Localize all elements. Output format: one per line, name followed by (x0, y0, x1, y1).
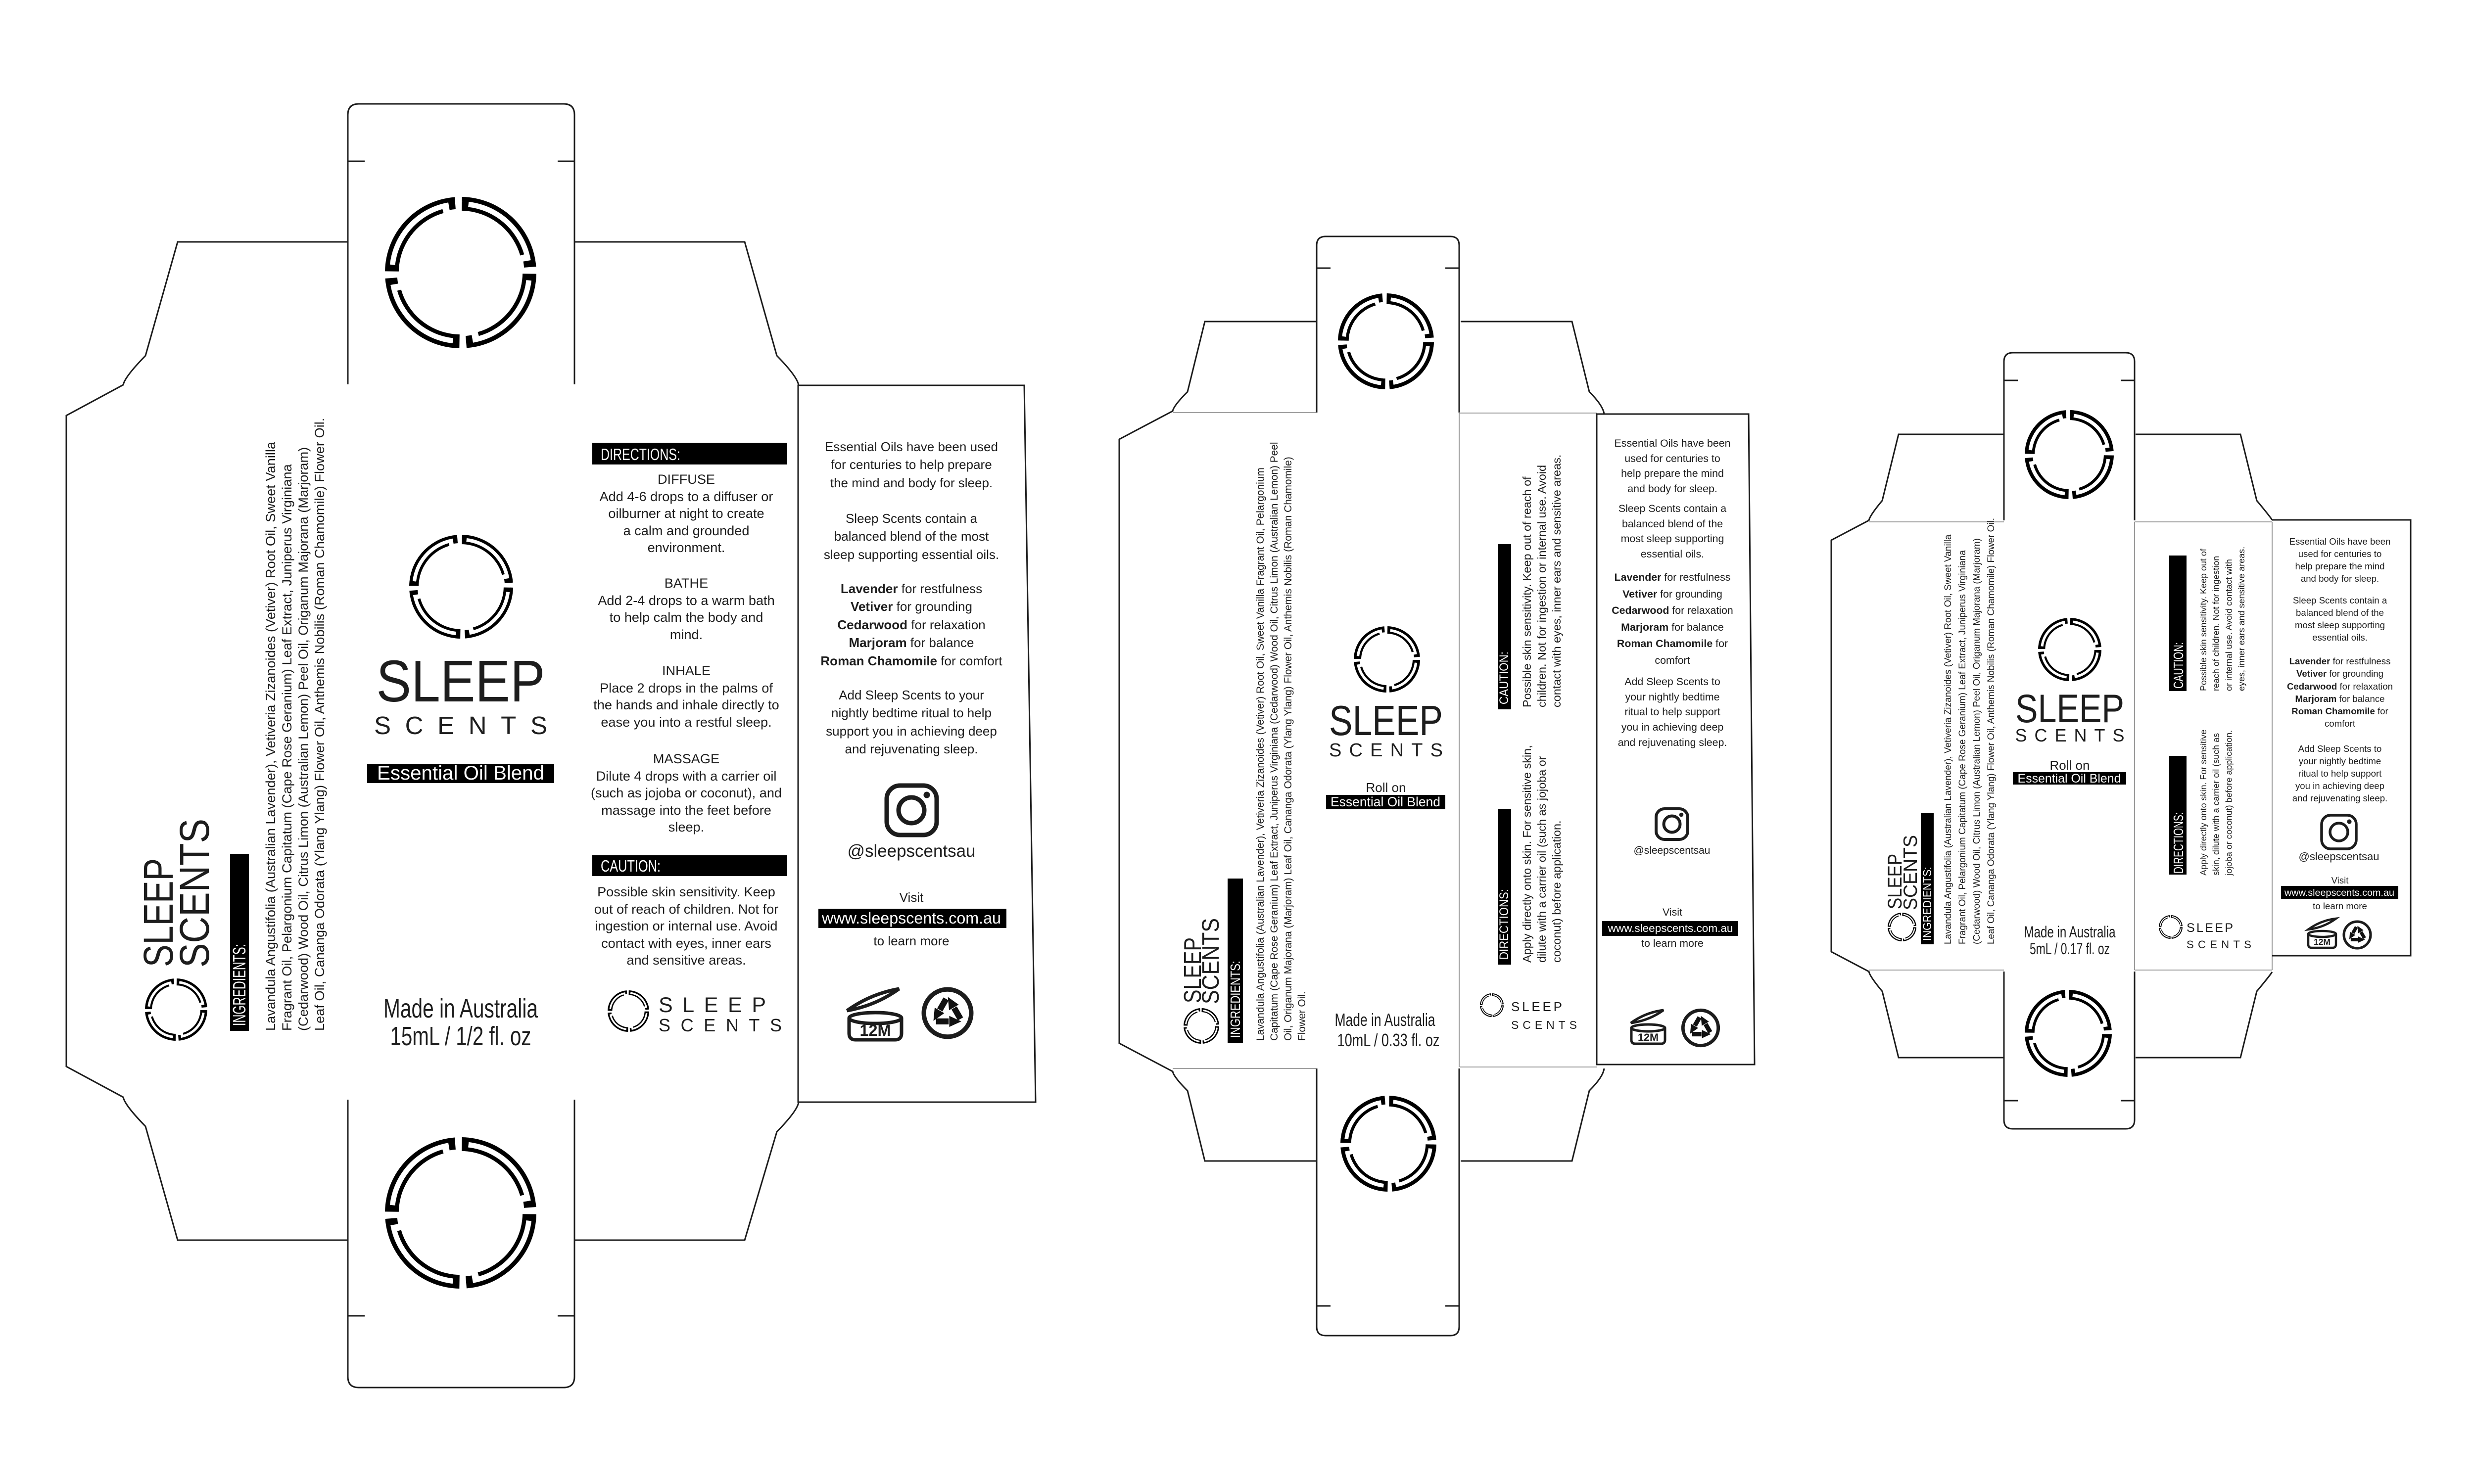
svg-text:SLEEP: SLEEP (1511, 999, 1565, 1014)
svg-text:and rejuvenating sleep.: and rejuvenating sleep. (2292, 793, 2387, 803)
svg-text:you in achieving deep: you in achieving deep (2295, 781, 2384, 791)
svg-text:Lavender for restfulness: Lavender for restfulness (1615, 571, 1731, 583)
svg-text:ritual to help support: ritual to help support (1624, 706, 1720, 718)
svg-text:used for centuries to: used for centuries to (2298, 549, 2382, 559)
svg-text:DIRECTIONS:: DIRECTIONS: (2171, 812, 2186, 874)
svg-text:and body for sleep.: and body for sleep. (1627, 483, 1717, 495)
svg-text:the hands and inhale directly: the hands and inhale directly to (593, 697, 779, 712)
svg-text:INGREDIENTS:: INGREDIENTS: (229, 944, 249, 1026)
svg-text:to learn more: to learn more (873, 933, 949, 948)
svg-text:SCENTS: SCENTS (1900, 835, 1921, 910)
svg-text:SCENTS: SCENTS (1329, 740, 1450, 761)
svg-text:Made in Australia: Made in Australia (1335, 1010, 1436, 1030)
svg-text:Essential Oil Blend: Essential Oil Blend (377, 762, 544, 784)
svg-text:Fragrant Oil, Pelargonium Capi: Fragrant Oil, Pelargonium Capitatum (Cap… (1957, 550, 1968, 944)
svg-text:Lavandula Angustifolia (Austra: Lavandula Angustifolia (Australian Laven… (1943, 534, 1953, 944)
svg-text:massage into the feet before: massage into the feet before (601, 802, 771, 818)
svg-text:Possible skin sensitivity. Kee: Possible skin sensitivity. Keep (597, 884, 775, 899)
svg-text:oilburner at night to create: oilburner at night to create (608, 506, 764, 521)
svg-text:(Cedarwood) Wood Oil, Citrus L: (Cedarwood) Wood Oil, Citrus Limon (Aust… (295, 447, 311, 1031)
svg-text:@sleepscentsau: @sleepscentsau (848, 841, 976, 861)
svg-text:and sensitive areas.: and sensitive areas. (626, 952, 746, 968)
svg-text:INHALE: INHALE (662, 663, 711, 678)
svg-text:Marjoram for balance: Marjoram for balance (2295, 694, 2384, 704)
svg-text:Sleep Scents contain a: Sleep Scents contain a (2293, 595, 2387, 605)
svg-text:essential oils.: essential oils. (1641, 548, 1704, 560)
svg-text:SCENTS: SCENTS (659, 1015, 792, 1035)
svg-text:SLEEP: SLEEP (2015, 687, 2124, 731)
svg-text:Lavandula Angustifolia (Austra: Lavandula Angustifolia (Australian Laven… (263, 441, 278, 1031)
svg-text:CAUTION:: CAUTION: (2171, 642, 2186, 689)
svg-text:Sleep Scents contain a: Sleep Scents contain a (1618, 503, 1726, 514)
svg-text:skin, dilute with a carrier oi: skin, dilute with a carrier oil (such as (2211, 733, 2221, 876)
svg-text:support you in achieving deep: support you in achieving deep (826, 724, 997, 739)
svg-text:www.sleepscents.com.au: www.sleepscents.com.au (821, 909, 1001, 927)
svg-text:balanced blend of the most: balanced blend of the most (834, 529, 989, 544)
svg-text:Add Sleep Scents to your: Add Sleep Scents to your (839, 688, 984, 702)
svg-text:Add Sleep Scents to: Add Sleep Scents to (2298, 743, 2382, 754)
svg-text:and rejuvenating sleep.: and rejuvenating sleep. (1618, 737, 1727, 748)
svg-text:(Cedarwood) Wood Oil, Citrus L: (Cedarwood) Wood Oil, Citrus Limon (Aust… (1972, 538, 1982, 944)
svg-text:most sleep supporting: most sleep supporting (2295, 620, 2385, 630)
svg-text:SCENTS: SCENTS (2015, 725, 2132, 745)
svg-text:balanced blend of the: balanced blend of the (1622, 518, 1723, 530)
svg-text:a calm and grounded: a calm and grounded (623, 523, 750, 538)
svg-text:and rejuvenating sleep.: and rejuvenating sleep. (845, 742, 978, 756)
svg-text:MASSAGE: MASSAGE (653, 751, 719, 766)
svg-text:comfort: comfort (1655, 654, 1690, 666)
svg-text:nightly bedtime ritual to help: nightly bedtime ritual to help (831, 705, 992, 720)
svg-text:Apply directly onto skin. For: Apply directly onto skin. For sensitive … (1521, 745, 1533, 963)
svg-text:Possible skin sensitivity. Kee: Possible skin sensitivity. Keep out of r… (1521, 476, 1533, 707)
svg-text:Vetiver for grounding: Vetiver for grounding (2296, 668, 2383, 679)
svg-text:jojoba or coconut) before appl: jojoba or coconut) before application. (2224, 730, 2234, 876)
svg-text:ease you into a restful sleep.: ease you into a restful sleep. (601, 714, 771, 730)
svg-text:(such as jojoba or coconut), a: (such as jojoba or coconut), and (591, 785, 782, 800)
svg-text:reach of children. Not for ing: reach of children. Not for ingestion (2211, 556, 2221, 691)
svg-text:the mind and body for sleep.: the mind and body for sleep. (830, 475, 993, 490)
svg-text:SLEEP: SLEEP (659, 993, 776, 1017)
svg-text:BATHE: BATHE (665, 575, 708, 591)
svg-text:you in achieving deep: you in achieving deep (1621, 721, 1723, 733)
svg-text:help prepare the mind: help prepare the mind (1621, 467, 1724, 479)
svg-text:ritual to help support: ritual to help support (2298, 768, 2382, 779)
svg-text:Capitatum (Cape Rose Geranium): Capitatum (Cape Rose Geranium) Leaf Extr… (1269, 442, 1280, 1041)
svg-text:Add Sleep Scents to: Add Sleep Scents to (1624, 676, 1720, 688)
svg-text:Essential Oils have been: Essential Oils have been (1615, 437, 1731, 449)
svg-text:@sleepscentsau: @sleepscentsau (2299, 850, 2379, 863)
svg-text:INGREDIENTS:: INGREDIENTS: (1228, 961, 1243, 1038)
svg-text:essential oils.: essential oils. (2312, 632, 2368, 643)
svg-text:Essential Oil Blend: Essential Oil Blend (2018, 772, 2121, 786)
svg-text:12M: 12M (1638, 1031, 1659, 1043)
svg-text:@sleepscentsau: @sleepscentsau (1634, 845, 1711, 856)
svg-text:DIFFUSE: DIFFUSE (658, 471, 715, 487)
svg-text:mind.: mind. (670, 627, 703, 642)
svg-text:Made in Australia: Made in Australia (2024, 923, 2116, 941)
svg-text:Possible skin sensitivity. Kee: Possible skin sensitivity. Keep out of (2198, 548, 2208, 691)
svg-text:SCENTS: SCENTS (1198, 918, 1224, 1004)
svg-text:CAUTION:: CAUTION: (601, 857, 661, 875)
svg-text:www.sleepscents.com.au: www.sleepscents.com.au (1608, 922, 1733, 934)
svg-text:Visit: Visit (2331, 875, 2349, 885)
svg-text:Lavandula Angustifolia (Austra: Lavandula Angustifolia (Australian Laven… (1255, 467, 1266, 1041)
svg-text:Visit: Visit (900, 890, 924, 905)
svg-text:for centuries to help prepare: for centuries to help prepare (831, 457, 992, 472)
svg-text:Add 4-6 drops to a diffuser or: Add 4-6 drops to a diffuser or (600, 489, 773, 504)
svg-text:Cedarwood for relaxation: Cedarwood for relaxation (837, 617, 985, 632)
svg-text:Essential Oils have been: Essential Oils have been (2289, 536, 2391, 547)
svg-text:ingestion or internal use. Avo: ingestion or internal use. Avoid (595, 918, 778, 933)
svg-text:12M: 12M (860, 1021, 891, 1039)
svg-text:www.sleepscents.com.au: www.sleepscents.com.au (2284, 887, 2394, 898)
svg-text:Fragrant Oil, Pelargonium Capi: Fragrant Oil, Pelargonium Capitatum (Cap… (279, 464, 294, 1031)
svg-text:Vetiver for grounding: Vetiver for grounding (851, 599, 972, 614)
svg-text:5mL / 0.17 fl. oz: 5mL / 0.17 fl. oz (2030, 940, 2110, 958)
svg-text:SCENTS: SCENTS (1511, 1019, 1581, 1031)
svg-text:comfort: comfort (2325, 718, 2356, 729)
svg-text:SCENTS: SCENTS (2187, 938, 2255, 951)
svg-text:Roman Chamomile for comfort: Roman Chamomile for comfort (820, 653, 1002, 668)
svg-text:help prepare the mind: help prepare the mind (2295, 561, 2384, 571)
svg-text:INGREDIENTS:: INGREDIENTS: (1921, 867, 1934, 941)
svg-text:contact with eyes, inner ears: contact with eyes, inner ears and sensit… (1550, 455, 1563, 707)
svg-text:dilute with a carrier oil (suc: dilute with a carrier oil (such as jojob… (1535, 756, 1548, 963)
svg-text:SLEEP: SLEEP (1329, 697, 1443, 744)
svg-text:SCENTS: SCENTS (374, 711, 562, 740)
svg-text:DIRECTIONS:: DIRECTIONS: (601, 445, 680, 464)
svg-text:Lavender for restfulness: Lavender for restfulness (841, 581, 982, 596)
svg-text:your nightly bedtime: your nightly bedtime (1625, 691, 1719, 703)
svg-text:SLEEP: SLEEP (2187, 921, 2235, 935)
svg-text:Apply directly onto skin. For: Apply directly onto skin. For sensitive (2198, 730, 2208, 876)
svg-text:most sleep supporting: most sleep supporting (1621, 533, 1724, 545)
svg-text:Roman Chamomile for: Roman Chamomile for (2291, 706, 2388, 716)
svg-text:Dilute 4 drops with a carrier: Dilute 4 drops with a carrier oil (596, 768, 777, 784)
svg-text:Oil, Origanum Majorana (Marjor: Oil, Origanum Majorana (Marjoram) Leaf O… (1283, 457, 1294, 1041)
svg-text:Roman Chamomile for: Roman Chamomile for (1617, 638, 1728, 649)
svg-text:Marjoram for balance: Marjoram for balance (1621, 621, 1724, 633)
svg-text:Vetiver for grounding: Vetiver for grounding (1622, 588, 1722, 600)
svg-text:balanced blend of the: balanced blend of the (2296, 607, 2384, 618)
svg-text:Roll on: Roll on (2050, 758, 2090, 773)
svg-text:Cedarwood for relaxation: Cedarwood for relaxation (1612, 604, 1733, 616)
svg-text:CAUTION:: CAUTION: (1497, 651, 1511, 704)
svg-text:to learn more: to learn more (1641, 937, 1704, 949)
svg-text:Roll on: Roll on (1366, 780, 1406, 795)
svg-text:Essential Oil Blend: Essential Oil Blend (1331, 794, 1440, 809)
svg-text:and body for sleep.: and body for sleep. (2301, 573, 2379, 584)
svg-text:15mL / 1/2 fl. oz: 15mL / 1/2 fl. oz (390, 1021, 531, 1051)
svg-text:out of reach of children. Not: out of reach of children. Not for (594, 901, 778, 917)
svg-text:Marjoram for balance: Marjoram for balance (849, 635, 974, 650)
svg-text:Leaf Oil, Cananga Odorata (Yla: Leaf Oil, Cananga Odorata (Ylang Ylang) … (1986, 518, 1997, 944)
svg-text:12M: 12M (2314, 937, 2331, 947)
svg-text:Cedarwood for relaxation: Cedarwood for relaxation (2287, 681, 2393, 692)
svg-text:your nightly bedtime: your nightly bedtime (2299, 756, 2381, 766)
svg-text:contact with eyes, inner ears: contact with eyes, inner ears (601, 935, 771, 951)
svg-text:environment.: environment. (648, 540, 725, 555)
svg-text:used for centuries to: used for centuries to (1624, 453, 1720, 464)
svg-text:eyes, inner ears and sensitive: eyes, inner ears and sensitive areas. (2236, 547, 2246, 691)
svg-text:or internal use. Avoid contact: or internal use. Avoid contact with (2224, 559, 2234, 691)
svg-text:Visit: Visit (1663, 906, 1682, 918)
svg-text:Add 2-4 drops to a warm bath: Add 2-4 drops to a warm bath (598, 593, 774, 608)
svg-text:10mL / 0.33 fl. oz: 10mL / 0.33 fl. oz (1337, 1030, 1440, 1050)
svg-text:to help calm the body and: to help calm the body and (610, 609, 763, 625)
svg-text:SCENTS: SCENTS (171, 819, 218, 968)
svg-text:SLEEP: SLEEP (377, 649, 545, 714)
svg-text:children. Not for ingestion or: children. Not for ingestion or internal … (1535, 465, 1548, 707)
svg-text:Flower Oil.: Flower Oil. (1296, 991, 1308, 1041)
svg-text:Essential Oils have been used: Essential Oils have been used (825, 439, 998, 454)
svg-text:Lavender for restfulness: Lavender for restfulness (2289, 656, 2391, 666)
svg-text:coconut) before application.: coconut) before application. (1550, 820, 1563, 963)
svg-text:Sleep Scents contain a: Sleep Scents contain a (846, 511, 978, 526)
svg-text:Leaf Oil, Cananga Odorata (Yla: Leaf Oil, Cananga Odorata (Ylang Ylang) … (312, 418, 327, 1031)
svg-text:Made in Australia: Made in Australia (383, 994, 538, 1023)
svg-text:sleep supporting essential oil: sleep supporting essential oils. (824, 547, 999, 562)
svg-text:Place 2 drops in the palms of: Place 2 drops in the palms of (600, 680, 773, 696)
svg-text:sleep.: sleep. (668, 819, 704, 835)
svg-text:DIRECTIONS:: DIRECTIONS: (1497, 889, 1511, 960)
svg-text:to learn more: to learn more (2313, 901, 2367, 911)
